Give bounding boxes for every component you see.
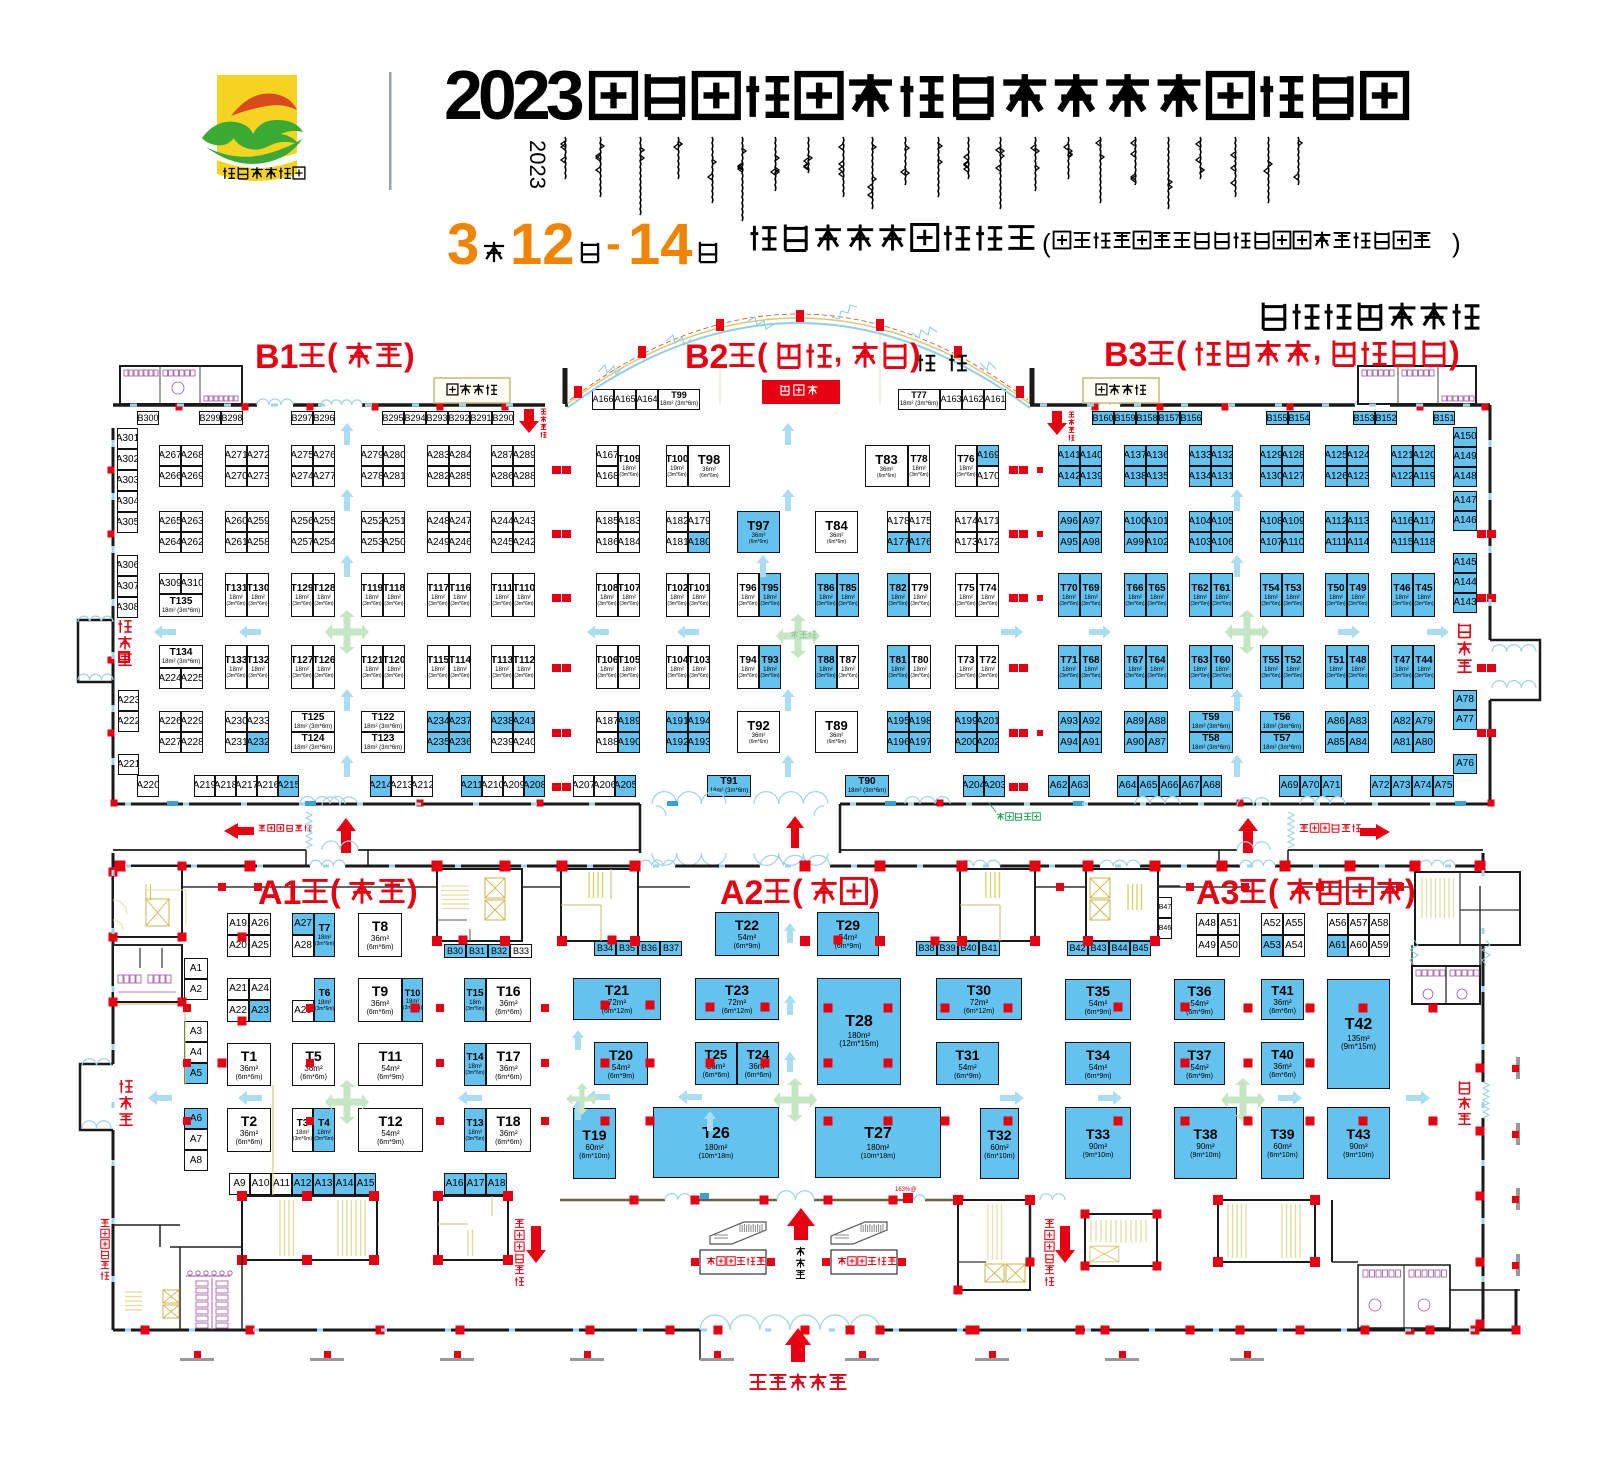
svg-text:): )	[910, 337, 921, 373]
svg-text:): )	[1449, 335, 1460, 371]
svg-text:,: ,	[834, 336, 842, 369]
svg-text:14: 14	[628, 212, 693, 277]
svg-text:3: 3	[447, 212, 479, 277]
svg-text:B3: B3	[1104, 336, 1147, 374]
svg-text:12: 12	[510, 212, 575, 277]
svg-text:): )	[869, 873, 880, 909]
svg-text:-: -	[606, 219, 621, 268]
svg-text:): )	[1452, 228, 1461, 258]
svg-text:(: (	[757, 337, 768, 373]
svg-text:A3: A3	[1196, 874, 1239, 912]
svg-text:): )	[1405, 873, 1416, 909]
svg-text:163%@: 163%@	[895, 1187, 916, 1193]
svg-text:(: (	[327, 337, 338, 373]
svg-text:): )	[407, 873, 418, 909]
svg-text:(: (	[1268, 873, 1279, 909]
svg-text:,: ,	[1313, 334, 1321, 367]
svg-text:B1: B1	[255, 338, 298, 376]
svg-text:2023: 2023	[525, 140, 550, 189]
svg-text:A2: A2	[720, 874, 763, 912]
svg-text:A1: A1	[258, 874, 301, 912]
svg-text:(: (	[330, 873, 341, 909]
svg-text:B2: B2	[685, 338, 728, 376]
svg-text:): )	[404, 337, 415, 373]
svg-text:2023: 2023	[444, 56, 583, 134]
svg-text:(: (	[1042, 228, 1051, 258]
svg-text:(: (	[792, 873, 803, 909]
svg-text:(: (	[1176, 335, 1187, 371]
